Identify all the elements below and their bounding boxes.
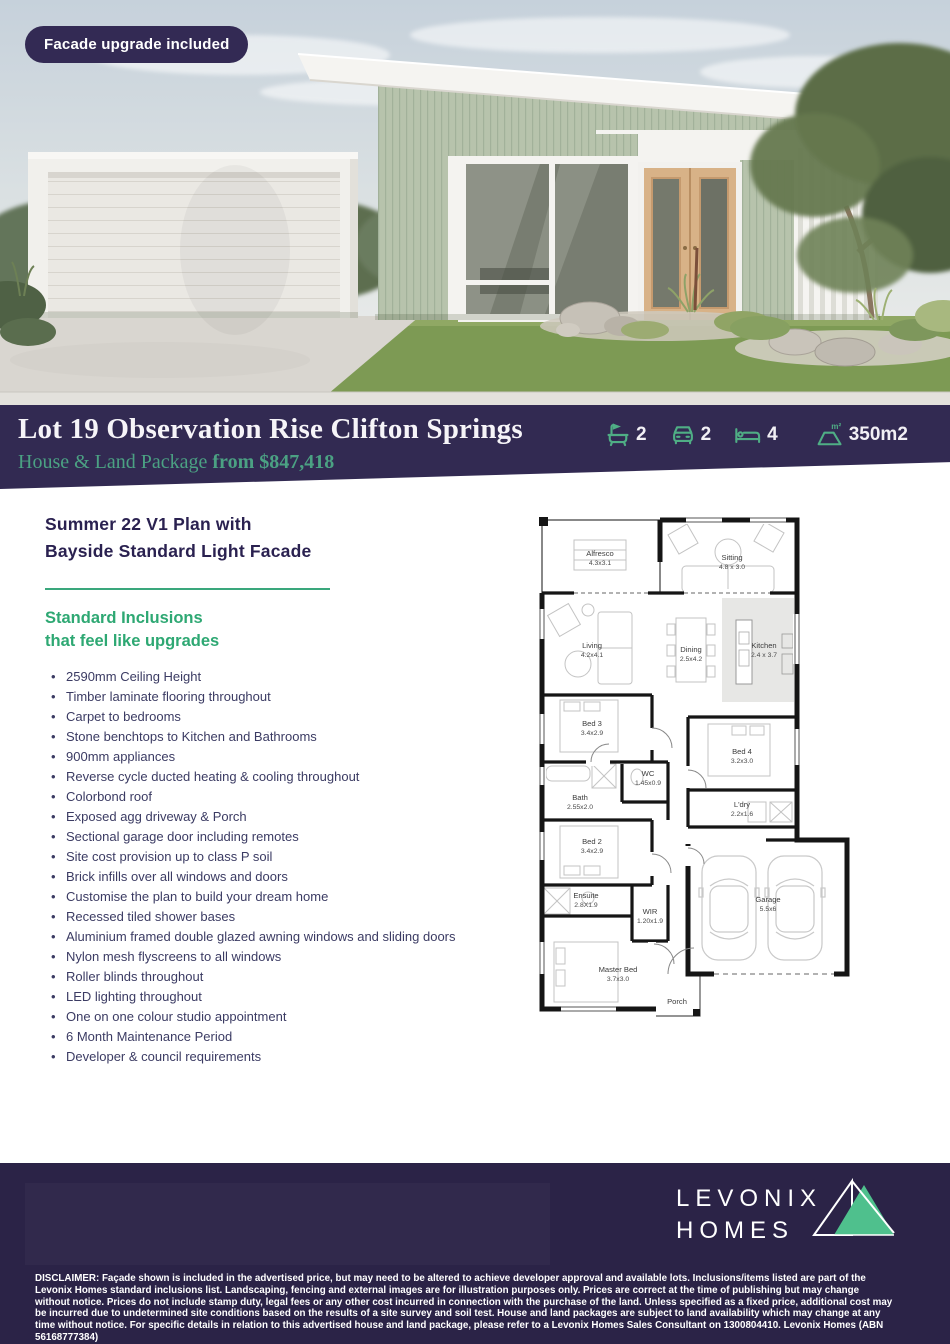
list-item: Developer & council requirements bbox=[48, 1051, 518, 1064]
brand-line1: LEVONIX bbox=[676, 1183, 822, 1215]
green-divider bbox=[45, 588, 330, 590]
footer-placeholder-box bbox=[25, 1183, 550, 1265]
svg-text:2.55x2.0: 2.55x2.0 bbox=[567, 804, 593, 811]
bed-count: 4 bbox=[767, 424, 778, 446]
car-count: 2 bbox=[701, 424, 712, 446]
svg-text:Dining: Dining bbox=[680, 645, 702, 654]
lot-title: Lot 19 Observation Rise Clifton Springs bbox=[18, 413, 523, 446]
triangle-logo-icon bbox=[812, 1177, 896, 1241]
svg-text:2.4 x 3.7: 2.4 x 3.7 bbox=[751, 652, 777, 659]
svg-text:2.2x1.6: 2.2x1.6 bbox=[731, 811, 754, 818]
svg-text:m²: m² bbox=[831, 422, 841, 431]
svg-text:Sitting: Sitting bbox=[721, 553, 742, 562]
bath-icon bbox=[605, 422, 631, 448]
svg-text:Living: Living bbox=[582, 641, 602, 650]
flyer-page: Facade upgrade included Lot 19 Observati… bbox=[0, 0, 950, 1344]
svg-text:Kitchen: Kitchen bbox=[751, 641, 776, 650]
inclusions-heading: Standard Inclusions that feel like upgra… bbox=[45, 607, 219, 653]
living-window bbox=[458, 156, 636, 322]
bath-count: 2 bbox=[636, 424, 647, 446]
floor-plan-drawing: Alfresco 4.3x3.1 Sitting 4.8 x 3.0 Livin… bbox=[536, 514, 858, 1104]
svg-text:3.4x2.9: 3.4x2.9 bbox=[581, 730, 604, 737]
title-banner: Lot 19 Observation Rise Clifton Springs … bbox=[0, 405, 950, 489]
svg-text:L'dry: L'dry bbox=[734, 800, 750, 809]
svg-text:Garage: Garage bbox=[755, 895, 780, 904]
svg-text:Bed 2: Bed 2 bbox=[582, 837, 602, 846]
svg-text:WIR: WIR bbox=[643, 907, 658, 916]
svg-text:Alfresco: Alfresco bbox=[586, 549, 613, 558]
area-icon: m² bbox=[814, 421, 844, 449]
svg-text:Bed 4: Bed 4 bbox=[732, 747, 752, 756]
svg-text:4.2x4.1: 4.2x4.1 bbox=[581, 652, 604, 659]
package-price: House & Land Package from $847,418 bbox=[18, 451, 334, 474]
svg-text:Bed 3: Bed 3 bbox=[582, 719, 602, 728]
list-item: Brick infills over all windows and doors bbox=[48, 871, 518, 884]
spec-land-size: m² 350m2 bbox=[814, 421, 908, 449]
list-item: Recessed tiled shower bases bbox=[48, 911, 518, 924]
brand-logo bbox=[812, 1177, 896, 1246]
list-item: Roller blinds throughout bbox=[48, 971, 518, 984]
plan-title-line2: Bayside Standard Light Facade bbox=[45, 538, 311, 565]
plan-title-line1: Summer 22 V1 Plan with bbox=[45, 511, 311, 538]
svg-text:1.45x0.9: 1.45x0.9 bbox=[635, 780, 661, 787]
price-value: from $847,418 bbox=[212, 451, 334, 473]
spec-cars: 2 bbox=[670, 422, 712, 448]
footpath bbox=[0, 392, 950, 405]
inclusions-heading-line2: that feel like upgrades bbox=[45, 630, 219, 653]
list-item: Site cost provision up to class P soil bbox=[48, 851, 518, 864]
disclaimer-text: DISCLAIMER: Façade shown is included in … bbox=[35, 1273, 895, 1344]
svg-text:Ensuite: Ensuite bbox=[573, 891, 598, 900]
list-item: Reverse cycle ducted heating & cooling t… bbox=[48, 771, 518, 784]
list-item: Carpet to bedrooms bbox=[48, 711, 518, 724]
facade-badge: Facade upgrade included bbox=[25, 26, 248, 63]
inclusions-list: 2590mm Ceiling Height Timber laminate fl… bbox=[48, 671, 518, 1071]
svg-text:Bath: Bath bbox=[572, 793, 588, 802]
svg-text:1.20x1.9: 1.20x1.9 bbox=[637, 918, 663, 925]
kitchen-island bbox=[736, 620, 752, 684]
list-item: LED lighting throughout bbox=[48, 991, 518, 1004]
list-item: Customise the plan to build your dream h… bbox=[48, 891, 518, 904]
list-item: 2590mm Ceiling Height bbox=[48, 671, 518, 684]
inclusions-heading-line1: Standard Inclusions bbox=[45, 607, 219, 630]
svg-text:Master Bed: Master Bed bbox=[599, 965, 638, 974]
floor-plan: Alfresco 4.3x3.1 Sitting 4.8 x 3.0 Livin… bbox=[536, 514, 858, 1109]
list-item: 6 Month Maintenance Period bbox=[48, 1031, 518, 1044]
svg-text:3.2x3.0: 3.2x3.0 bbox=[731, 758, 754, 765]
spec-icons-row: 2 2 bbox=[605, 421, 908, 449]
land-size-value: 350m2 bbox=[849, 424, 908, 446]
svg-text:3.4x2.9: 3.4x2.9 bbox=[581, 848, 604, 855]
list-item: Stone benchtops to Kitchen and Bathrooms bbox=[48, 731, 518, 744]
garage-building bbox=[28, 152, 358, 335]
svg-text:2.5x4.2: 2.5x4.2 bbox=[680, 656, 703, 663]
list-item: Sectional garage door including remotes bbox=[48, 831, 518, 844]
spec-bedrooms: 4 bbox=[734, 422, 778, 448]
svg-text:5.5x6: 5.5x6 bbox=[760, 906, 777, 913]
svg-text:WC: WC bbox=[642, 769, 655, 778]
svg-text:Porch: Porch bbox=[667, 997, 687, 1006]
list-item: 900mm appliances bbox=[48, 751, 518, 764]
svg-text:4.8 x 3.0: 4.8 x 3.0 bbox=[719, 564, 745, 571]
package-label: House & Land Package bbox=[18, 451, 212, 473]
svg-text:4.3x3.1: 4.3x3.1 bbox=[589, 560, 612, 567]
bed-icon bbox=[734, 422, 762, 448]
entry-doors bbox=[638, 162, 742, 320]
brand-wordmark: LEVONIX HOMES bbox=[676, 1183, 822, 1247]
svg-text:2.8X1.9: 2.8X1.9 bbox=[574, 902, 598, 909]
plan-title: Summer 22 V1 Plan with Bayside Standard … bbox=[45, 511, 311, 565]
list-item: One on one colour studio appointment bbox=[48, 1011, 518, 1024]
kitchen-zone bbox=[722, 598, 794, 702]
list-item: Colorbond roof bbox=[48, 791, 518, 804]
list-item: Aluminium framed double glazed awning wi… bbox=[48, 931, 518, 944]
spec-bathrooms: 2 bbox=[605, 422, 647, 448]
car-icon bbox=[670, 422, 696, 448]
list-item: Exposed agg driveway & Porch bbox=[48, 811, 518, 824]
list-item: Timber laminate flooring throughout bbox=[48, 691, 518, 704]
list-item: Nylon mesh flyscreens to all windows bbox=[48, 951, 518, 964]
hero-photo: Facade upgrade included bbox=[0, 0, 950, 405]
footer: LEVONIX HOMES DISCLAIMER: Façade shown i… bbox=[0, 1163, 950, 1344]
brand-line2: HOMES bbox=[676, 1215, 822, 1247]
svg-text:3.7x3.0: 3.7x3.0 bbox=[607, 976, 630, 983]
